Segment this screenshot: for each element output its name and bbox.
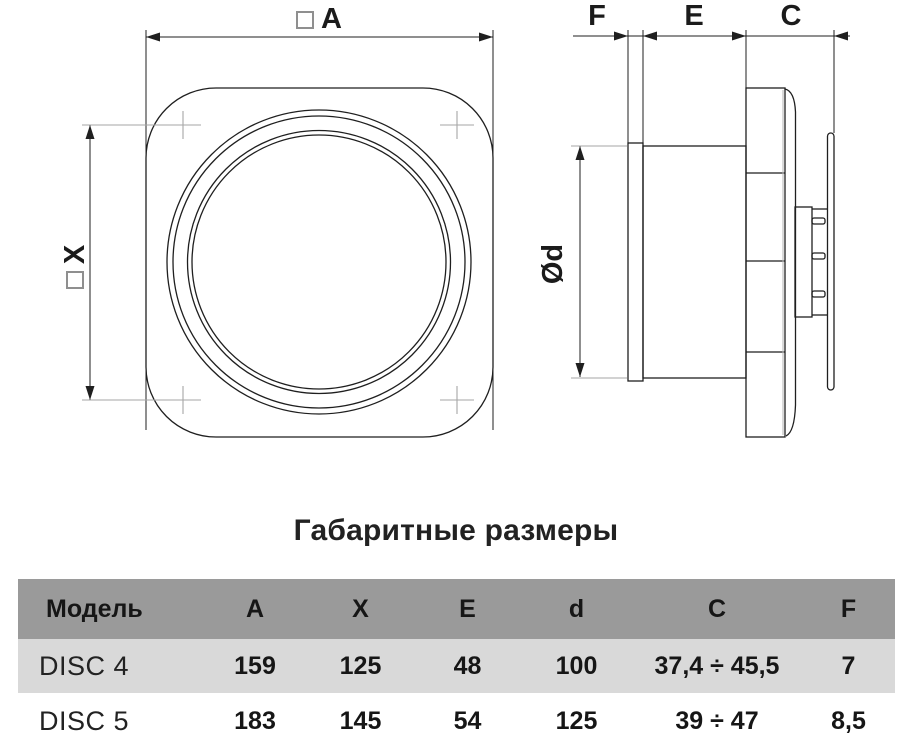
column-header-a: A [203,595,307,624]
dimension-f-label: F [583,2,611,31]
dimension-f-text: F [588,2,606,31]
dimension-a-text: A [321,5,342,34]
motor-pin [812,253,825,259]
value-a: 159 [203,652,307,681]
value-f: 7 [802,652,895,681]
value-x: 125 [307,652,414,681]
value-c: 125 [521,707,632,736]
value-d: 100 [521,652,632,681]
column-header-x: X [307,595,414,624]
value-c: 39 ÷ 47 [632,707,802,736]
front-ring-inner-1 [188,131,451,394]
dimension-a-label: A [296,5,342,34]
side-view-body [628,88,834,437]
square-symbol-icon [66,271,84,289]
duct-lip [628,143,643,381]
dimensions-table: Модель A X E d C F DISC 4 159 125 48 100… [18,579,895,749]
dimension-x-text: X [61,245,90,264]
dimensional-drawing-page: A X F E C Ød Габаритные размеры Модель A… [0,0,915,749]
table-header-row: Модель A X E d C F [18,579,895,639]
casing-body [746,88,785,437]
value-e: 54 [414,707,521,736]
front-disc-edge [828,133,835,390]
column-header-f: F [802,595,895,624]
value-e: 48 [414,652,521,681]
value-f: 8,5 [802,707,895,736]
page-title: Габаритные размеры [0,514,912,548]
dimension-d-label: Ød [538,236,568,292]
table-row: DISC 5 183 145 54 125 39 ÷ 47 8,5 [18,693,895,749]
motor-pin [812,291,825,297]
column-header-d: d [521,595,632,624]
front-flange-outline [146,88,493,437]
dimension-c-text: C [781,2,802,31]
column-header-e: E [414,595,521,624]
table-row: DISC 4 159 125 48 100 37,4 ÷ 45,5 7 [18,639,895,693]
motor-pin [812,218,825,224]
front-ring-inner-2 [192,135,446,389]
dimension-fec-lines [573,30,850,146]
dimension-c-label: C [777,2,805,31]
motor-block [795,207,812,317]
dimension-x-extensions [82,125,201,400]
dimension-e-label: E [680,2,708,31]
model-name: DISC 5 [18,706,203,737]
front-view [146,88,493,437]
dimension-x-label: X [60,238,90,296]
value-x: 145 [307,707,414,736]
model-name: DISC 4 [18,651,203,682]
crosshair-icon [440,111,474,139]
crosshair-icon [440,386,474,414]
value-a: 183 [203,707,307,736]
dimension-d-text: Ød [539,244,568,284]
column-header-model: Модель [18,595,203,624]
front-ring-outer-2 [173,116,465,408]
technical-drawing [0,0,915,565]
dimension-e-text: E [684,2,703,31]
column-header-c: C [632,595,802,624]
dimension-d-extensions [571,146,627,378]
casing-bezel [785,89,796,436]
square-symbol-icon [296,11,314,29]
front-ring-outer-1 [167,110,471,414]
value-c: 37,4 ÷ 45,5 [632,652,802,681]
duct-spigot [643,146,746,378]
